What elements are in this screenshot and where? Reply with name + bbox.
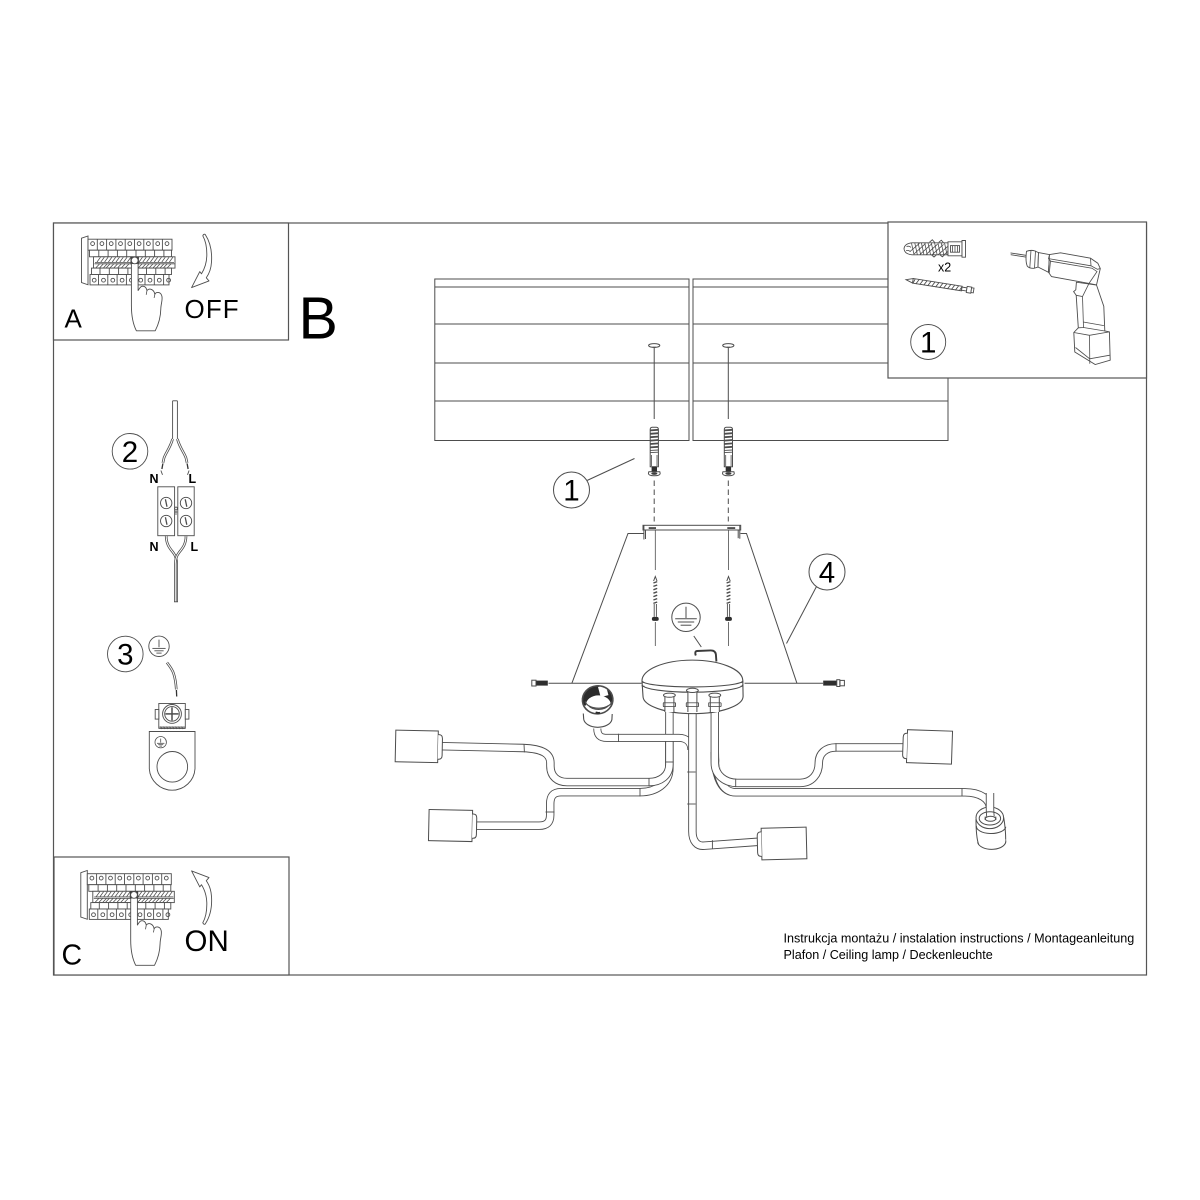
- svg-text:1: 1: [920, 327, 936, 360]
- svg-text:OFF: OFF: [185, 294, 240, 324]
- svg-text:L: L: [189, 472, 197, 486]
- svg-text:A: A: [65, 304, 83, 334]
- svg-text:L: L: [191, 540, 199, 554]
- svg-text:3: 3: [117, 639, 133, 672]
- svg-text:4: 4: [819, 557, 835, 590]
- svg-text:2: 2: [122, 436, 138, 469]
- svg-text:N: N: [150, 540, 159, 554]
- svg-text:B: B: [299, 286, 338, 352]
- svg-text:1: 1: [563, 475, 579, 508]
- svg-text:N: N: [150, 472, 159, 486]
- svg-text:Plafon / Ceiling lamp / Decken: Plafon / Ceiling lamp / Deckenleuchte: [784, 948, 993, 962]
- svg-text:ON: ON: [185, 925, 229, 958]
- svg-text:Instrukcja montażu / instalati: Instrukcja montażu / instalation instruc…: [784, 932, 1135, 946]
- svg-text:x2: x2: [938, 261, 951, 275]
- svg-text:C: C: [62, 940, 83, 972]
